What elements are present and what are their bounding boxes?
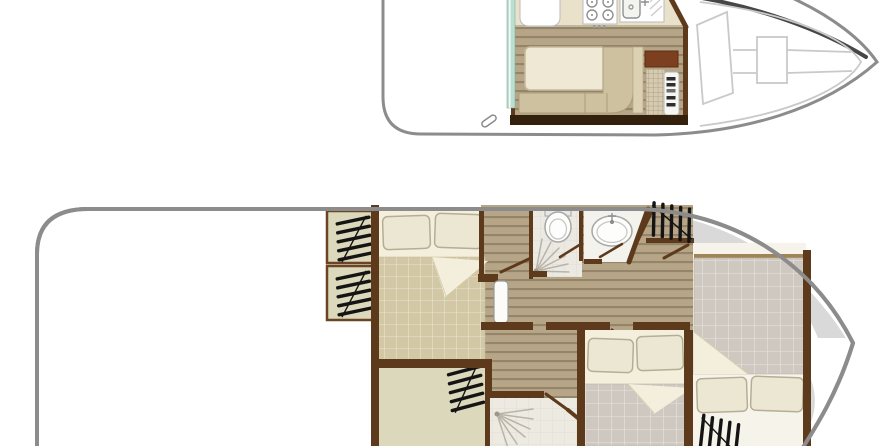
aft-lower-room xyxy=(379,365,492,446)
bow-sunpad xyxy=(757,37,787,83)
sliding-door-glass-line xyxy=(509,0,511,108)
pillow xyxy=(636,335,683,371)
fridge-icon xyxy=(520,0,560,26)
stove-icon xyxy=(583,0,617,28)
bow-cabin xyxy=(693,243,811,446)
wc-bottom-wall xyxy=(529,271,547,277)
corridor-wall-stub xyxy=(478,274,498,282)
washbasin-bottom-wall xyxy=(584,259,602,264)
companionway-stairs xyxy=(646,69,665,115)
pillow xyxy=(434,213,482,249)
bench-backrest xyxy=(633,47,643,113)
corridor-bottom-wall xyxy=(633,322,690,330)
floorplan-svg xyxy=(0,0,890,446)
aft-cabin xyxy=(377,209,488,363)
toilet-icon xyxy=(545,209,571,242)
boat-floorplan-canvas xyxy=(0,0,890,446)
aft-cabin-left-wall xyxy=(371,205,379,446)
lower-deck-plan xyxy=(37,203,853,446)
second-shower-room xyxy=(487,391,579,446)
upper-cabin-right-wall xyxy=(683,27,688,125)
sliding-door-teal xyxy=(507,0,515,108)
corridor-bottom-wall xyxy=(481,322,533,330)
upper-deck-plan xyxy=(383,0,877,135)
mid-cabin-left-wall xyxy=(577,330,585,446)
helm-console-icon xyxy=(664,72,679,115)
side-lockers xyxy=(327,211,374,320)
shower2-top-wall xyxy=(487,391,544,398)
wc-right-wall xyxy=(579,209,583,261)
mid-cabin-right-wall xyxy=(684,330,693,446)
galley-sink-icon xyxy=(620,0,664,22)
pillow xyxy=(750,376,803,412)
pillow xyxy=(382,215,430,250)
aft-cabin-right-wall xyxy=(479,209,484,281)
pillow xyxy=(696,377,747,413)
helm-cabinet xyxy=(645,51,678,67)
upper-cabin xyxy=(507,0,688,125)
corridor-bottom-wall xyxy=(546,322,610,330)
upper-cabin-aft-wall xyxy=(510,115,688,125)
pillow xyxy=(587,338,633,373)
dinette-table xyxy=(525,47,607,90)
mid-cabin xyxy=(577,330,693,446)
galley xyxy=(513,0,686,28)
aft-cabin-bottom-wall xyxy=(375,359,492,368)
corridor-door-leaf xyxy=(494,281,508,323)
wc-left-wall xyxy=(529,209,533,279)
windshield xyxy=(697,12,733,104)
bow-bed-head-trim xyxy=(694,254,806,258)
